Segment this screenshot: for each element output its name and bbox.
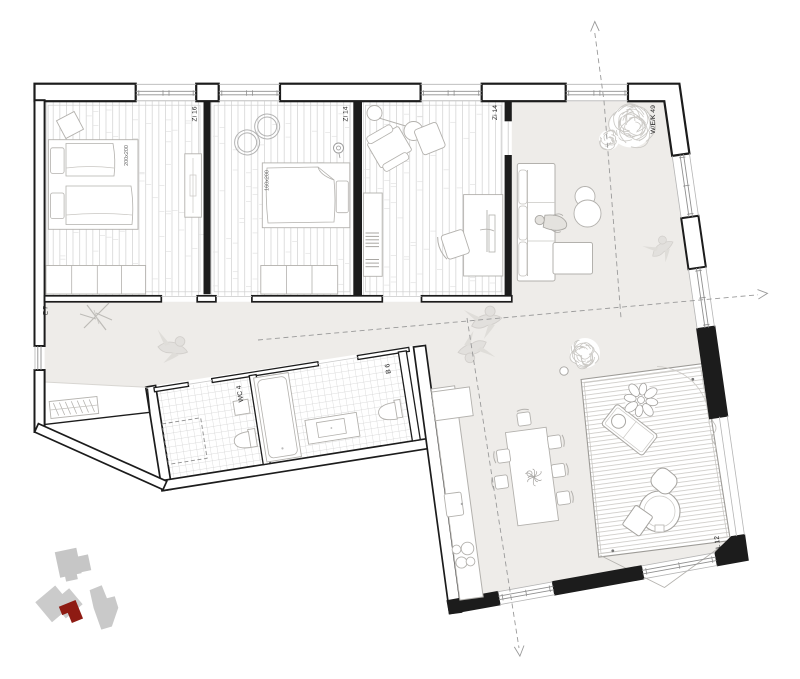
- svg-text:200x200: 200x200: [124, 145, 130, 166]
- svg-text:Zi 16: Zi 16: [191, 106, 198, 121]
- svg-text:160x200: 160x200: [265, 170, 271, 191]
- svg-text:E 7: E 7: [44, 305, 50, 315]
- svg-text:W/E/K 49: W/E/K 49: [650, 105, 657, 134]
- svg-text:Zi 14: Zi 14: [492, 105, 499, 120]
- svg-text:Zi 14: Zi 14: [343, 106, 350, 121]
